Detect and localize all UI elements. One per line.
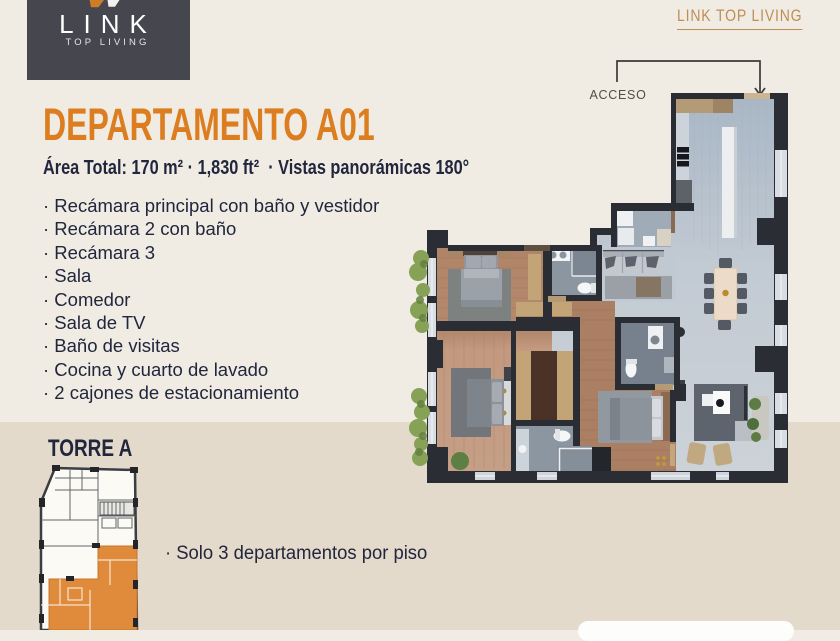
svg-text:ACCESO: ACCESO	[590, 88, 647, 102]
